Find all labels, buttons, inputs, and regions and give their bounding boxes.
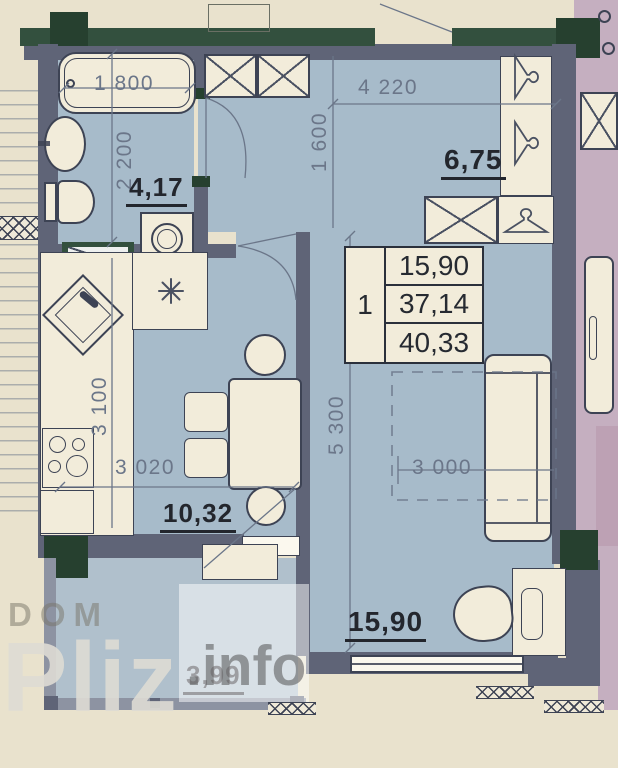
stove-burner	[48, 460, 61, 473]
dim-hallway-width: 4 220	[358, 76, 418, 100]
stool	[244, 334, 286, 376]
stove-burner	[66, 455, 88, 477]
wall-top-green-band	[452, 28, 564, 46]
unit-number: 1	[346, 248, 386, 362]
total-area-value: 40,33	[386, 324, 482, 362]
vent-chimney	[208, 4, 270, 32]
watermark-suffix: .info	[186, 638, 306, 695]
fridge	[40, 490, 94, 534]
sofa	[484, 354, 552, 542]
dim-bathtub-width: 1 800	[94, 72, 154, 96]
toilet-bowl	[57, 180, 95, 224]
coat-hanger-icon	[511, 119, 541, 167]
label-living-area: 15,90	[345, 606, 426, 642]
bathtub-drain	[66, 79, 75, 88]
living-window-mullion	[352, 663, 522, 665]
wardrobe-x	[424, 196, 498, 244]
dim-living-depth: 5 300	[325, 395, 349, 455]
adjacent-building-hatch	[0, 90, 38, 514]
sofa-armrest-line	[486, 522, 550, 524]
coat-hanger-icon	[502, 206, 550, 236]
wall-step-bottomright	[528, 658, 600, 686]
washing-machine-drum-inner	[157, 229, 177, 249]
watermark-brand: Pliz	[2, 628, 179, 726]
washbasin-tap	[38, 141, 50, 146]
burner-star-icon	[156, 276, 186, 306]
living-area-value: 15,90	[386, 248, 482, 286]
wall-right-lower	[566, 560, 600, 664]
neighbor-wall-block	[596, 426, 618, 546]
desk-monitor	[521, 588, 543, 640]
apartment-area-value: 37,14	[386, 286, 482, 324]
neighbor-hinge-symbol	[602, 42, 615, 55]
door-jamb	[192, 176, 210, 187]
hatch-notch	[0, 216, 38, 240]
insulation-hatch	[476, 686, 534, 699]
balcony-bench	[202, 544, 278, 580]
insulation-hatch	[268, 702, 316, 715]
label-hallway-area: 6,75	[441, 144, 506, 180]
label-bathroom-area: 4,17	[126, 172, 187, 207]
neighbor-apartment-lower	[598, 560, 618, 710]
wall-pier-topleft	[50, 12, 88, 46]
sofa-armrest-line	[486, 372, 550, 374]
stool	[246, 486, 286, 526]
neighbor-shaft	[580, 92, 618, 150]
dining-table	[228, 378, 302, 490]
dining-chair	[184, 392, 228, 432]
neighbor-door-handle	[589, 316, 597, 360]
insulation-hatch	[544, 700, 604, 713]
washbasin	[44, 116, 86, 172]
sofa-backrest-line	[536, 374, 538, 522]
wall-right	[552, 44, 576, 564]
neighbor-hinge-symbol	[598, 10, 611, 23]
kitchen-doorway	[236, 232, 298, 260]
hall-cabinet-x	[257, 54, 310, 98]
stove-burner	[72, 438, 85, 451]
dim-kitchen-width: 3 020	[115, 456, 175, 480]
apartment-info-table: 1 15,90 37,14 40,33	[344, 246, 484, 364]
dining-chair	[184, 438, 228, 478]
toilet-tank	[44, 182, 57, 222]
dim-hallway-depth: 1 600	[308, 112, 332, 172]
label-kitchen-area: 10,32	[160, 498, 236, 533]
floorplan-canvas: 1 15,90 37,14 40,33	[0, 0, 618, 768]
dim-living-width: 3 000	[412, 456, 472, 480]
hall-cabinet-x	[204, 54, 257, 98]
dim-kitchen-depth: 3 100	[88, 376, 112, 436]
wall-pier-bottomright	[560, 530, 598, 570]
coat-hanger-icon	[511, 53, 541, 101]
stove-burner	[49, 436, 66, 453]
